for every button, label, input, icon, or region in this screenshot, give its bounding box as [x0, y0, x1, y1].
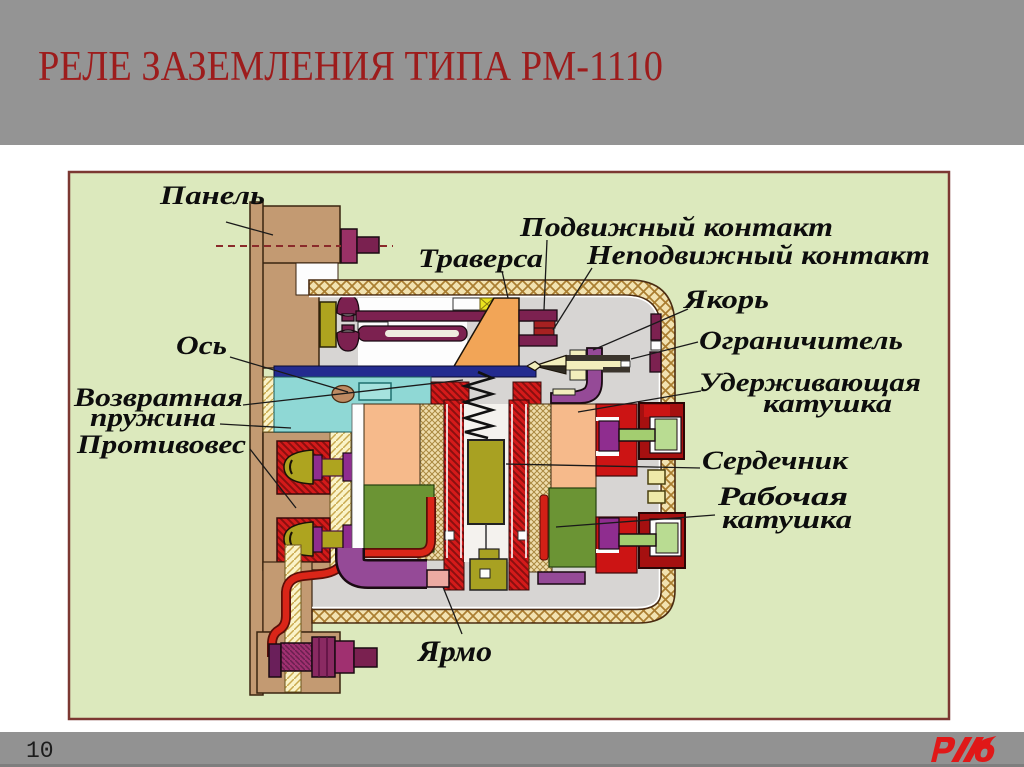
- svg-text:катушка: катушка: [722, 505, 852, 534]
- svg-text:Ось: Ось: [176, 331, 227, 360]
- svg-text:Ярмо: Ярмо: [417, 635, 492, 668]
- svg-text:РЕЛЕ ЗАЗЕМЛЕНИЯ ТИПА РМ-1110: РЕЛЕ ЗАЗЕМЛЕНИЯ ТИПА РМ-1110: [38, 44, 663, 90]
- svg-text:Сердечник: Сердечник: [702, 446, 849, 475]
- svg-text:Неподвижный контакт: Неподвижный контакт: [586, 240, 930, 270]
- svg-text:Траверса: Траверса: [418, 244, 543, 273]
- svg-text:Ограничитель: Ограничитель: [699, 326, 903, 355]
- svg-text:Подвижный контакт: Подвижный контакт: [519, 212, 833, 242]
- svg-text:Панель: Панель: [159, 181, 265, 210]
- svg-text:Якорь: Якорь: [683, 285, 769, 314]
- svg-text:пружина: пружина: [90, 403, 216, 432]
- svg-text:10: 10: [26, 738, 54, 764]
- svg-text:Противовес: Противовес: [76, 430, 247, 459]
- svg-text:катушка: катушка: [763, 389, 892, 418]
